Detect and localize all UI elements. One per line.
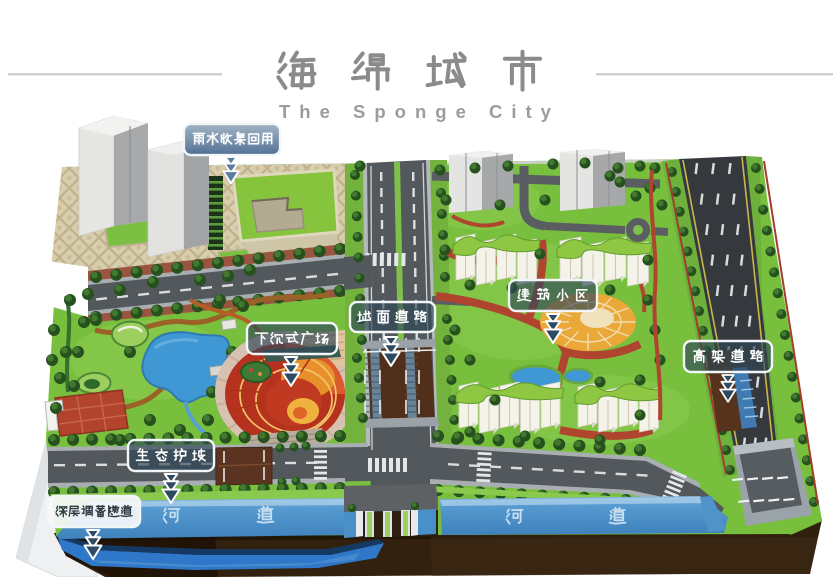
svg-text:The Sponge City: The Sponge City bbox=[279, 101, 560, 122]
